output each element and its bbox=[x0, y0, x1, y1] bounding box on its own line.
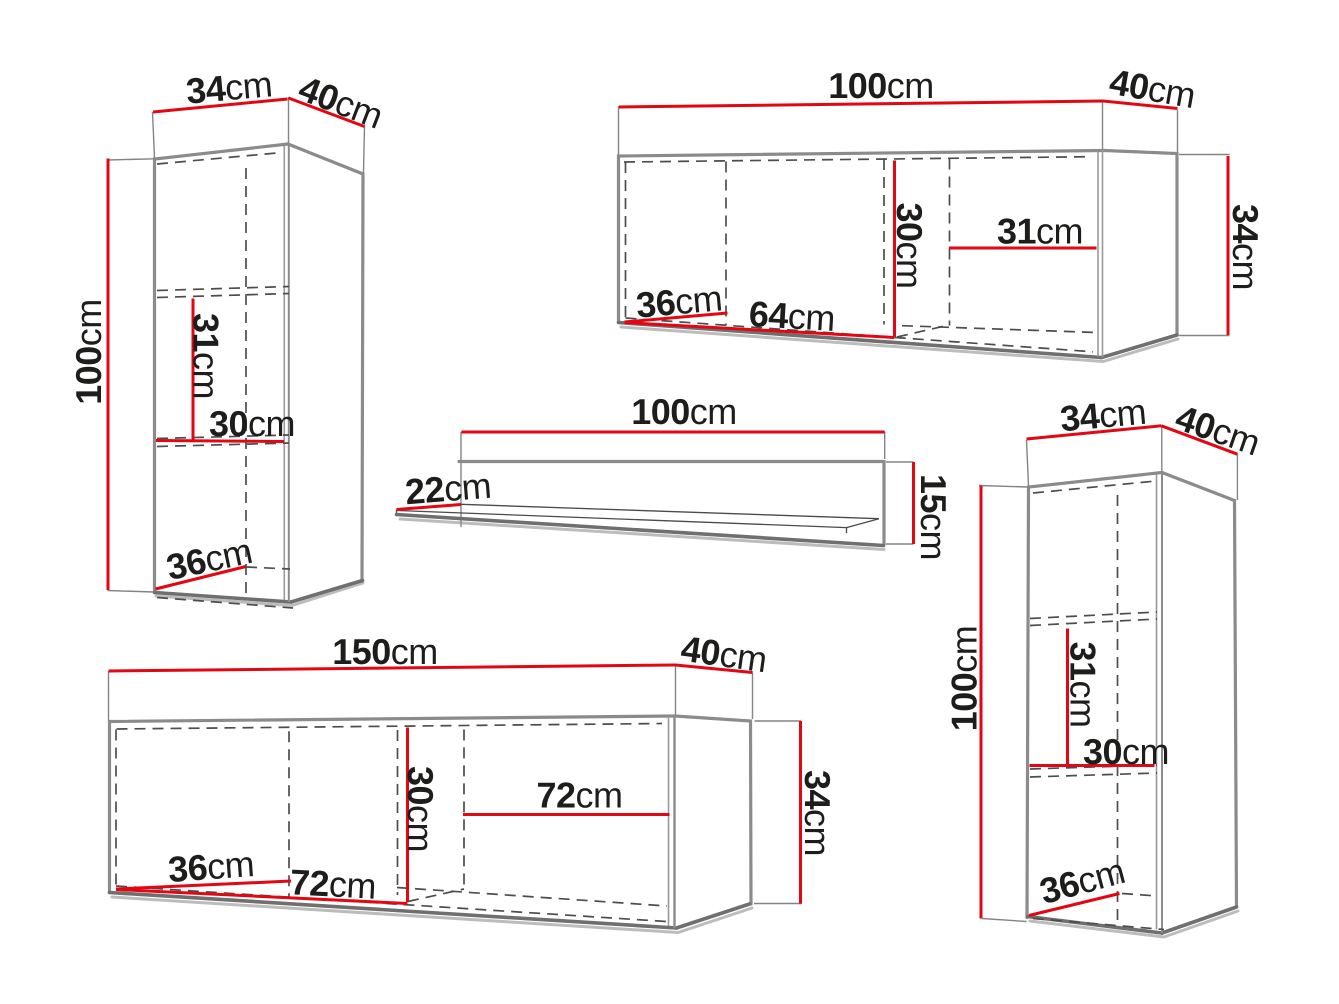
svg-text:36cm: 36cm bbox=[634, 277, 723, 325]
svg-text:30cm: 30cm bbox=[1083, 731, 1169, 772]
svg-text:34cm: 34cm bbox=[1058, 391, 1147, 440]
svg-text:100cm: 100cm bbox=[631, 391, 737, 432]
svg-text:31cm: 31cm bbox=[1063, 641, 1104, 727]
svg-text:34cm: 34cm bbox=[797, 770, 838, 856]
svg-text:15cm: 15cm bbox=[913, 474, 954, 560]
svg-text:36cm: 36cm bbox=[167, 843, 256, 890]
svg-text:30cm: 30cm bbox=[400, 766, 441, 852]
svg-text:31cm: 31cm bbox=[997, 211, 1083, 252]
svg-text:64cm: 64cm bbox=[748, 293, 836, 339]
svg-text:30cm: 30cm bbox=[209, 403, 295, 444]
svg-text:150cm: 150cm bbox=[332, 631, 438, 672]
svg-text:100cm: 100cm bbox=[68, 299, 109, 405]
svg-text:22cm: 22cm bbox=[404, 465, 493, 513]
svg-text:72cm: 72cm bbox=[536, 775, 622, 816]
svg-text:30cm: 30cm bbox=[889, 202, 930, 288]
svg-text:31cm: 31cm bbox=[186, 313, 227, 399]
svg-text:72cm: 72cm bbox=[289, 861, 377, 906]
svg-text:100cm: 100cm bbox=[944, 626, 985, 732]
svg-text:100cm: 100cm bbox=[828, 65, 934, 106]
svg-text:34cm: 34cm bbox=[184, 63, 273, 111]
svg-text:34cm: 34cm bbox=[1225, 204, 1266, 290]
